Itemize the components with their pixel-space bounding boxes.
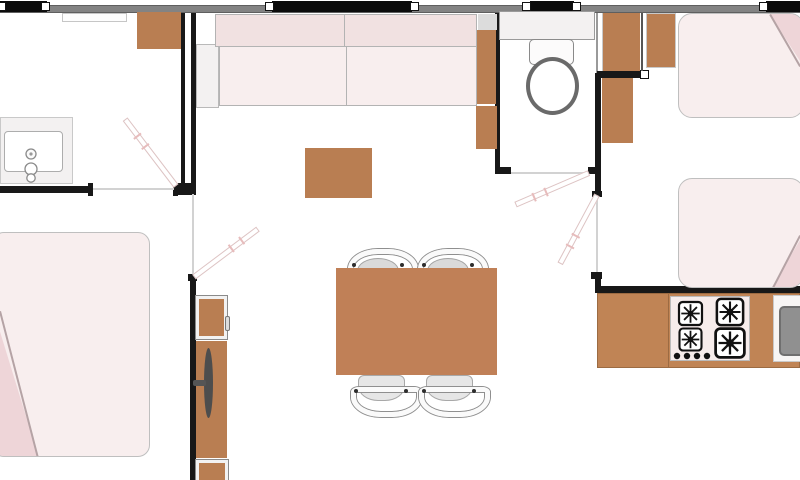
door-handle-icon <box>565 244 574 250</box>
single-bed-top-pillow <box>679 14 800 117</box>
hob-knobs <box>674 353 710 359</box>
door-threshold-dressing <box>93 188 174 190</box>
dining-chair-bottom-left <box>351 374 412 408</box>
side-cabinet-upper <box>477 30 496 104</box>
door-handle-icon <box>543 188 548 197</box>
faucet-icon <box>22 147 40 187</box>
door-handle-icon <box>228 244 235 252</box>
door-handle-icon <box>238 237 245 245</box>
window-cap <box>522 2 531 11</box>
side-cabinet-lower <box>476 106 497 149</box>
door-handle-icon <box>571 233 580 239</box>
window-dressing-room-icon <box>0 1 47 12</box>
window-sill <box>62 13 127 22</box>
coffee-table <box>305 148 372 198</box>
master-bed-pillow <box>0 233 149 456</box>
sofa-armrest <box>196 44 219 108</box>
bedside-cabinet-top <box>646 13 676 68</box>
door-threshold-master <box>192 194 194 276</box>
wall-toilet-right-upper <box>596 13 598 73</box>
dining-chair-bottom-right <box>419 374 480 408</box>
hob-burners-icon <box>670 296 750 361</box>
window-twin-bedroom-icon <box>766 1 800 12</box>
toilet-bowl <box>526 57 579 115</box>
wardrobe-top-left <box>137 12 181 49</box>
floorplan-canvas <box>0 0 800 480</box>
chair-dot <box>352 263 356 267</box>
sink-basin <box>779 306 800 356</box>
chair-dot <box>354 389 358 393</box>
door-threshold-twin-bedroom <box>596 197 598 273</box>
wall-toilet-left-foot <box>495 167 511 174</box>
storage-unit-bottom <box>196 460 228 480</box>
wall-cap <box>640 70 649 79</box>
sofa-back-cushion-left <box>215 14 345 47</box>
side-shelf <box>478 14 497 30</box>
window-cap <box>410 2 419 11</box>
wall-dressing-living-outer <box>181 13 185 189</box>
toilet-shelf <box>499 11 595 40</box>
window-cap <box>759 2 768 11</box>
wall-wardrobe-stub <box>597 71 641 78</box>
door-leaf-twin-bedroom <box>557 194 599 266</box>
fridge-handle <box>225 316 230 331</box>
chair-dot <box>400 263 404 267</box>
wardrobe-divider <box>641 13 643 71</box>
window-cap <box>0 2 6 11</box>
chair-dot <box>404 389 408 393</box>
chair-dot <box>470 263 474 267</box>
fridge-unit <box>196 296 227 339</box>
door-handle-icon <box>133 133 141 140</box>
door-handle-icon <box>141 143 149 150</box>
window-cap <box>41 2 50 11</box>
window-cap <box>265 2 274 11</box>
tv-stand <box>193 380 206 386</box>
wall-dressing-bottom <box>0 186 92 193</box>
single-bed-bottom <box>678 178 800 288</box>
sofa-seat-right <box>346 46 477 106</box>
window-living-room-icon <box>272 1 412 12</box>
sofa-back-cushion-right <box>344 14 477 47</box>
sofa-seat-left <box>219 46 347 106</box>
single-bed-top <box>678 13 800 118</box>
chair-dot <box>422 389 426 393</box>
dining-table <box>336 268 497 375</box>
chair-dot <box>472 389 476 393</box>
wall-toilet-right <box>595 73 601 169</box>
door-leaf-toilet <box>514 170 590 207</box>
chair-dot <box>422 263 426 267</box>
wardrobe-right-lower <box>602 78 633 143</box>
master-bed <box>0 232 150 457</box>
counter-divider <box>668 293 669 368</box>
window-cap <box>572 2 581 11</box>
door-handle-icon <box>532 193 537 202</box>
wardrobe-right-upper <box>602 13 640 71</box>
